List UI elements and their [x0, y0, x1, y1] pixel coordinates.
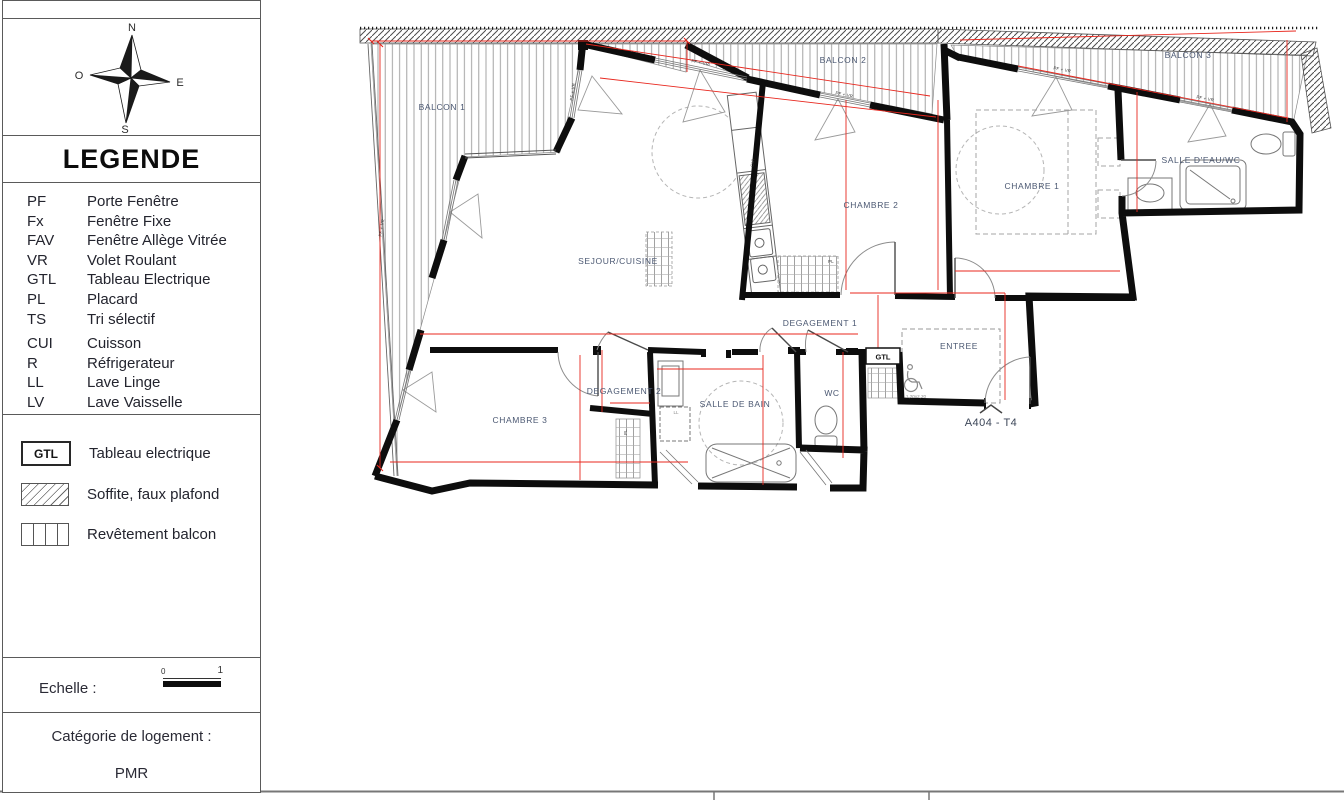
legend-title: LEGENDE: [63, 144, 201, 175]
abbr-label: Porte Fenêtre: [87, 192, 179, 212]
category-label: Catégorie de logement :: [3, 728, 260, 745]
room-label-entree: ENTREE: [940, 341, 978, 351]
compass-north-label: N: [128, 22, 136, 34]
legend-row: LLLave Linge: [3, 373, 260, 393]
symbol-row: Soffite, faux plafond: [3, 483, 260, 506]
room-label-balcon1: BALCON 1: [419, 102, 466, 112]
compass-west-label: O: [75, 70, 84, 82]
room-label-degagement1: DEGAGEMENT 1: [783, 318, 858, 328]
legend-row: VRVolet Roulant: [3, 251, 260, 271]
clearance-tag: 1,20x2,20: [906, 394, 927, 399]
category-value: PMR: [3, 765, 260, 782]
room-label-sejour: SEJOUR/CUISINE: [578, 256, 658, 266]
scale-tick-1: 1: [217, 665, 223, 676]
lave-linge-tag: LL: [673, 410, 679, 415]
abbr-key: GTL: [27, 270, 87, 290]
legend-row: GTLTableau Electrique: [3, 270, 260, 290]
abbr-label: Cuisson: [87, 334, 141, 354]
symbol-row: Revêtement balcon: [3, 523, 260, 546]
abbr-key: CUI: [27, 334, 87, 354]
wheelchair-icon: [905, 365, 923, 392]
room-label-balcon2: BALCON 2: [820, 55, 867, 65]
floorplan-page: GTL BALCON 1 BALCON 2 BALCON 3 SEJOUR/CU…: [0, 0, 1344, 800]
abbr-label: Tableau Electrique: [87, 270, 210, 290]
room-label-degagement2: DEGAGEMENT 2: [587, 386, 662, 396]
balcony-2-floor: [690, 44, 937, 114]
legend-row: PFPorte Fenêtre: [3, 192, 260, 212]
compass-south-label: S: [121, 124, 128, 135]
abbr-key: Fx: [27, 212, 87, 232]
legend-symbols: GTL Tableau electrique Soffite, faux pla…: [2, 414, 261, 658]
placard-chambre3: [616, 419, 640, 478]
shower-room-fixtures: [1128, 132, 1295, 210]
category-section: Catégorie de logement : PMR: [2, 712, 261, 793]
room-label-chambre1: CHAMBRE 1: [1005, 181, 1060, 191]
compass-box: N E S O: [2, 18, 261, 136]
gtl-symbol-swatch: GTL: [21, 441, 71, 466]
legend-row: FxFenêtre Fixe: [3, 212, 260, 232]
balcony-stripe-swatch: [21, 523, 69, 546]
legend-row: PLPlacard: [3, 290, 260, 310]
abbr-key: PF: [27, 192, 87, 212]
unit-label: A404 - T4: [965, 417, 1018, 429]
scale-tick-0: 0: [161, 667, 165, 676]
abbr-label: Tri sélectif: [87, 310, 155, 330]
bed-chambre1: [976, 110, 1120, 234]
symbol-label: Revêtement balcon: [87, 526, 216, 543]
legend-row: CUICuisson: [3, 334, 260, 354]
abbr-key: TS: [27, 310, 87, 330]
room-label-chambre2: CHAMBRE 2: [844, 200, 899, 210]
room-label-salle-bain: SALLE DE BAIN: [700, 399, 771, 409]
abbr-label: Fenêtre Fixe: [87, 212, 171, 232]
abbr-label: Lave Linge: [87, 373, 160, 393]
legend-header: LEGENDE: [2, 135, 261, 183]
scale-section: Echelle : 0 1: [2, 657, 261, 713]
abbr-key: LL: [27, 373, 87, 393]
abbr-key: PL: [27, 290, 87, 310]
cuisson-tag: CUI: [750, 159, 756, 168]
legend-row: FAVFenêtre Allège Vitrée: [3, 231, 260, 251]
compass-rose: N E S O: [3, 19, 260, 135]
symbol-label: Soffite, faux plafond: [87, 486, 219, 503]
soffit-hatch-swatch: [21, 483, 69, 506]
legend-row: TSTri sélectif: [3, 310, 260, 330]
abbr-label: Fenêtre Allège Vitrée: [87, 231, 227, 251]
room-label-wc: WC: [824, 388, 839, 398]
room-label-chambre3: CHAMBRE 3: [493, 415, 548, 425]
placard-tag: PL: [828, 259, 834, 264]
abbr-key: FAV: [27, 231, 87, 251]
legend-row: RRéfrigerateur: [3, 354, 260, 374]
legend-abbreviations: PFPorte Fenêtre FxFenêtre Fixe FAVFenêtr…: [2, 182, 261, 415]
scale-label: Echelle :: [39, 680, 97, 697]
legend-row: LVLave Vaisselle: [3, 393, 260, 413]
abbr-label: Lave Vaisselle: [87, 393, 183, 413]
room-label-balcon3: BALCON 3: [1165, 50, 1212, 60]
abbr-label: Réfrigerateur: [87, 354, 175, 374]
title-block-top: [2, 0, 261, 19]
abbr-key: LV: [27, 393, 87, 413]
abbr-label: Volet Roulant: [87, 251, 176, 271]
wc-toilet: [815, 406, 837, 447]
abbr-label: Placard: [87, 290, 138, 310]
abbr-key: R: [27, 354, 87, 374]
abbr-key: VR: [27, 251, 87, 271]
entree-closet: [868, 368, 898, 398]
symbol-label: Tableau electrique: [89, 445, 211, 462]
scale-bar: 0 1: [163, 678, 221, 687]
gtl-box: GTL: [866, 348, 900, 364]
placard-tag: PL: [623, 429, 628, 435]
gtl-box-label: GTL: [876, 353, 891, 362]
compass-east-label: E: [176, 77, 183, 89]
room-label-salle-eau: SALLE D'EAU/WC: [1162, 155, 1241, 165]
bathroom-fixtures: [658, 361, 796, 482]
symbol-row: GTL Tableau electrique: [3, 441, 260, 466]
